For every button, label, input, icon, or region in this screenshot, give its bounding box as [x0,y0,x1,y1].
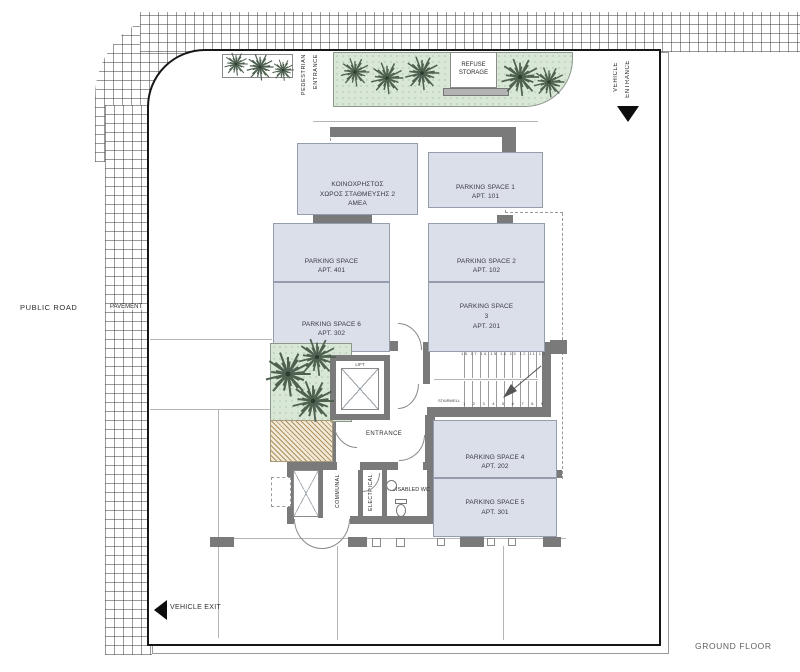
space-label: APT. 101 [472,192,499,202]
tree-icon [296,336,338,378]
disabled-wc-label: DISABLED WC [392,487,430,493]
parking-space-communal-disabled: ΚΟΙΝΟΧΡΗΣΤΟΣ ΧΩΡΟΣ ΣΤΑΘΜΕΥΣΗΣ 2 ΑΜΕΑ [297,143,418,215]
space-label: PARKING SPACE 1 [456,183,515,193]
column-row1-right [497,215,513,223]
space-label: PARKING SPACE [305,257,358,267]
column-base-1 [372,538,381,547]
parking-space-3: PARKING SPACE 3 APT. 201 [428,282,545,352]
space-label: PARKING SPACE [460,302,513,312]
space-label: ΧΩΡΟΣ ΣΤΑΘΜΕΥΣΗΣ 2 [320,190,395,200]
stair-numbers-top: 18 17 16 15 14 13 12 11 10 [461,351,546,356]
ramp-hatch-area [270,420,333,462]
space-label: APT. 202 [481,462,508,472]
space-label: PARKING SPACE 5 [465,498,524,508]
column-base-3 [437,538,445,546]
refuse-storage-label-line2: STORAGE [459,70,488,78]
column-bottom-3 [460,537,484,547]
floor-title: GROUND FLOOR [695,641,772,651]
column-base-2 [396,538,405,547]
wall-stairwell-bottom [427,407,550,417]
road-hatch-left-pavement [105,105,152,655]
wall-top-beam [330,127,516,137]
public-road-label: PUBLIC ROAD [20,303,77,312]
space-label: 3 [485,312,489,322]
paving-joint-line-right [503,546,504,640]
parking-space-401: PARKING SPACE APT. 401 [273,223,390,282]
wall-stairwell-stub-right [550,340,567,354]
column-row1-left [313,215,372,223]
parking-space-4: PARKING SPACE 4 APT. 202 [433,420,557,478]
wall-rooms-top-b [360,462,398,470]
vehicle-exit-label: VEHICLE EXIT [170,604,221,611]
wall-partition-electrical-wc [382,470,387,518]
dashed-service-box [271,477,291,507]
space-label: PARKING SPACE 4 [465,453,524,463]
column-base-5 [508,538,516,546]
service-shaft-room [293,470,319,517]
washbasin-icon [386,480,397,491]
column-bottom-4 [543,537,561,547]
refuse-storage-label-line1: REFUSE [461,62,485,70]
space-label: APT. 102 [473,266,500,276]
bed-edge-line-lower [150,409,271,410]
road-hatch-top [140,12,800,52]
stair-direction-arrow-icon [498,360,544,404]
parking-space-5: PARKING SPACE 5 APT. 301 [433,478,557,537]
space-label: PARKING SPACE 2 [457,257,516,267]
space-label: ΑΜΕΑ [348,199,367,209]
stairwell-label: STAIRWELL [438,398,460,403]
tree-icon [271,58,295,82]
pavement-label: PAVEMENT [109,304,143,310]
space-label: APT. 301 [481,508,508,518]
tree-icon [290,378,336,424]
column-bottom-2 [348,537,367,547]
ground-floor-plan: PUBLIC ROAD PAVEMENT PEDESTRIAN ENTRANCE… [0,0,800,672]
vehicle-entrance-arrow-icon [617,106,639,122]
upper-floor-dashed-line-step [505,212,563,213]
lift-car [341,368,379,410]
space-label: ΚΟΙΝΟΧΡΗΣΤΟΣ [331,180,383,190]
tree-icon [369,60,405,96]
communal-room-label: COMMUNAL [335,474,341,508]
tree-icon [532,65,566,99]
entrance-label: ENTRANCE [366,431,402,437]
lift-label: LIFT [341,362,379,367]
column-bottom-1 [210,537,234,547]
parking-space-2: PARKING SPACE 2 APT. 102 [428,223,545,282]
wall-rooms-top-a [287,462,337,470]
space-label: APT. 201 [473,322,500,332]
canopy-outline-line [313,121,538,122]
tree-icon [339,56,371,88]
paving-joint-line-mid [337,546,338,640]
space-label: APT. 401 [318,266,345,276]
pedestrian-entrance-label-line1: PEDESTRIAN [301,54,307,95]
pedestrian-entrance-label-line2: ENTRANCE [313,54,319,89]
parking-space-1: PARKING SPACE 1 APT. 101 [428,152,543,208]
vehicle-entrance-label-line1: VEHICLE [613,62,619,92]
wall-top-beam-stub [502,137,516,152]
vehicle-exit-arrow-icon [154,600,167,620]
vehicle-entrance-label-line2: ENTRANCE [625,60,631,98]
tree-icon [403,54,441,92]
space-label: PARKING SPACE 6 [302,320,361,330]
column-base-4 [487,538,495,546]
bed-edge-line-upper [150,339,272,340]
toilet-bowl-icon [396,504,406,517]
refuse-storage-room: REFUSE STORAGE [450,52,497,88]
